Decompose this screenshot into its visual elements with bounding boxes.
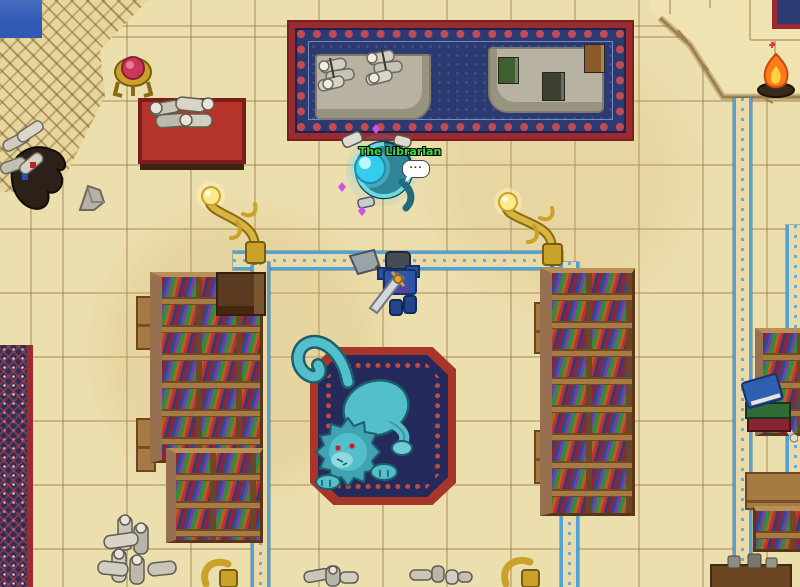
stone-debris[interactable] [72, 180, 108, 214]
game-viewport: The Librarian ... [0, 0, 800, 587]
npc-name-label: The Librarian [330, 145, 470, 158]
desk-far-right[interactable] [745, 472, 800, 510]
golden-serpent-lamp[interactable] [193, 180, 273, 265]
tableware [722, 552, 782, 570]
scroll-heap[interactable] [142, 92, 234, 148]
lamp-base[interactable] [498, 552, 542, 587]
lectern[interactable] [216, 272, 266, 316]
dark-book[interactable] [542, 72, 565, 101]
corner-carpet [772, 0, 800, 29]
speech-bubble: ... [402, 160, 430, 178]
book-stack[interactable] [740, 372, 798, 448]
player-character[interactable] [346, 246, 424, 316]
water-pool [0, 0, 42, 38]
green-book[interactable] [498, 57, 519, 84]
scroll-bundles[interactable] [316, 44, 426, 96]
blue-beast-statue[interactable] [290, 330, 425, 495]
scroll-pile[interactable] [300, 556, 362, 587]
campfire[interactable] [752, 40, 800, 100]
brown-book[interactable] [584, 44, 605, 73]
bookshelf-far-bottom[interactable] [753, 506, 800, 552]
floor-inlay-outer [733, 98, 752, 587]
golden-serpent-lamp[interactable] [490, 182, 570, 267]
scroll-pile-large[interactable] [92, 510, 220, 587]
scroll-pile[interactable] [408, 562, 476, 587]
bookshelf-right[interactable] [540, 268, 635, 516]
left-edge-carpet [0, 345, 33, 587]
